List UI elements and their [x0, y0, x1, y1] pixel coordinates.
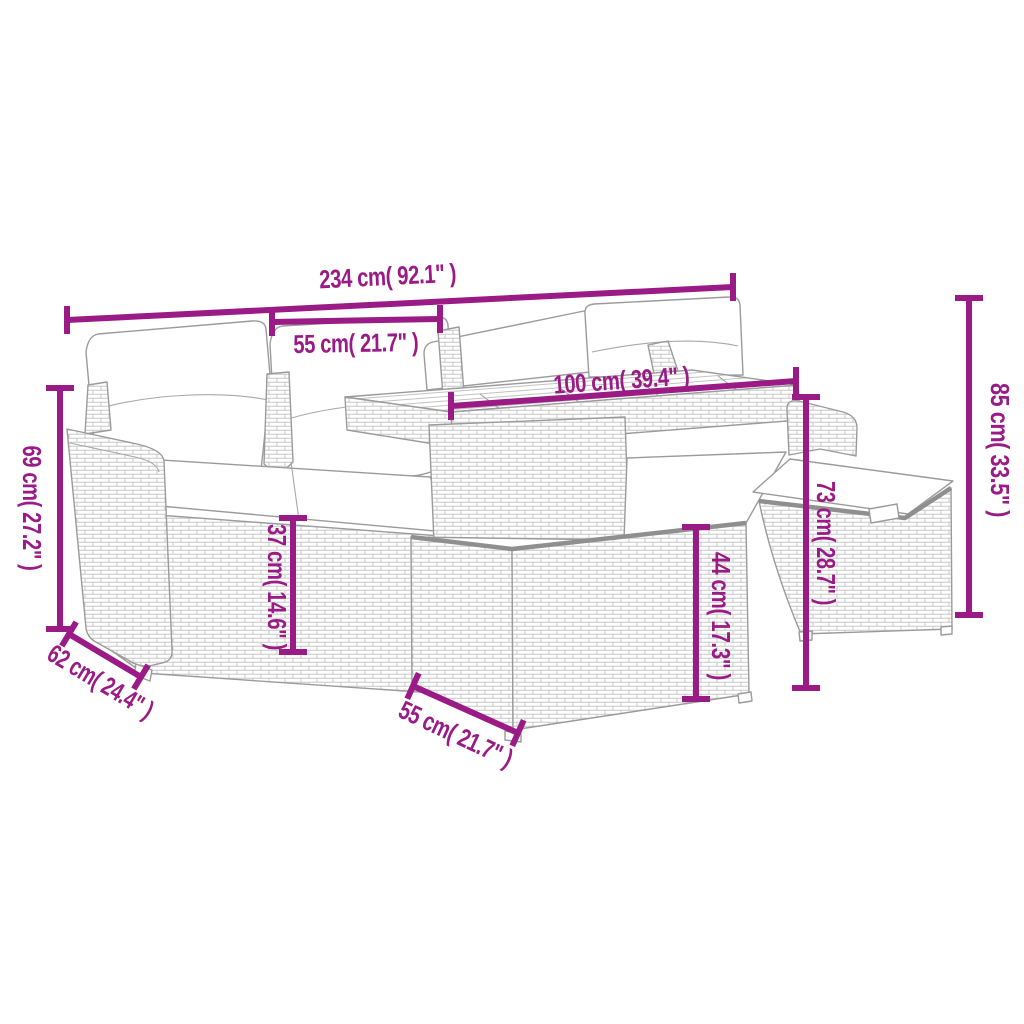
furniture-foot [738, 692, 752, 703]
pillow-tie [438, 327, 464, 396]
dimension-armrest-height: 69 cm( 27.2" ) [17, 388, 74, 629]
pillow-tie [85, 382, 111, 434]
dimension-label-footstool-height: 44 cm( 17.3" ) [706, 552, 736, 680]
furniture-foot [941, 626, 952, 635]
dimension-label-armrest-height: 69 cm( 27.2" ) [17, 446, 47, 571]
sofa-left-armrest [67, 429, 172, 666]
dimension-label-overall-width: 234 cm( 92.1" ) [318, 258, 456, 295]
dimension-label-table-height: 73 cm( 28.7" ) [811, 481, 841, 605]
right-armrest [787, 401, 857, 456]
footstool-left-face [411, 537, 513, 730]
dimension-overall-height: 85 cm( 33.5" ) [955, 298, 1015, 615]
product-dimension-diagram: 234 cm( 92.1" ) 55 cm( 21.7" ) 100 cm( 3… [0, 0, 1024, 1024]
right-section [753, 401, 953, 641]
dimension-label-overall-height: 85 cm( 33.5" ) [985, 383, 1015, 517]
table-pedestal [429, 417, 629, 542]
dimension-label-seat-width: 55 cm( 21.7" ) [293, 327, 419, 359]
small-footstool-body [759, 488, 952, 634]
pillow-tie [264, 372, 293, 476]
dimension-label-seat-height: 37 cm( 14.6" ) [262, 524, 292, 650]
dimension-seat-width: 55 cm( 21.7" ) [272, 305, 440, 359]
diagram-canvas: 234 cm( 92.1" ) 55 cm( 21.7" ) 100 cm( 3… [0, 0, 1024, 1024]
dimension-line-seat-width [272, 319, 440, 322]
